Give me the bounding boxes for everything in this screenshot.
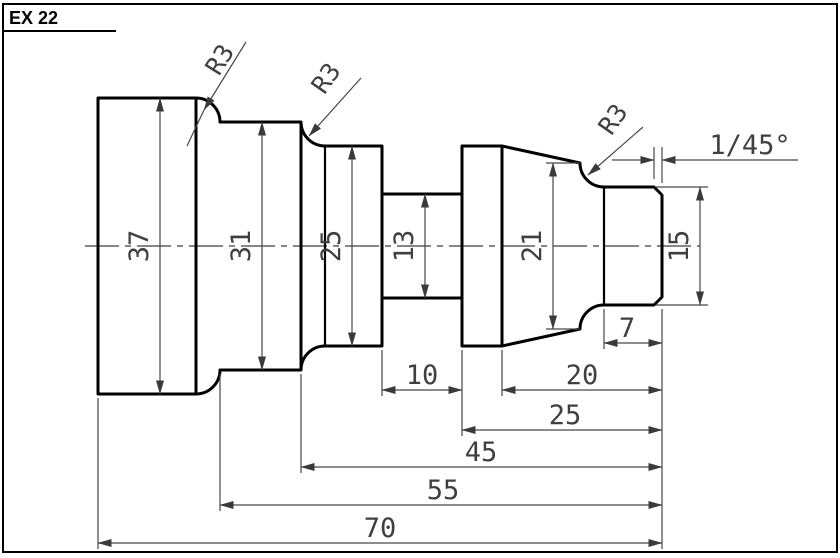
dim-text-7: 7 bbox=[619, 313, 635, 344]
dim-text-20: 20 bbox=[566, 360, 599, 391]
dim-text-25: 25 bbox=[549, 400, 582, 431]
radius-text-r3-3: R3 bbox=[593, 98, 634, 139]
dim-text-45: 45 bbox=[465, 437, 498, 468]
page-frame: EX 22 bbox=[3, 4, 837, 552]
extension-lines bbox=[98, 147, 708, 549]
cad-drawing: EX 22 bbox=[0, 0, 840, 558]
dimension-texts: 37 31 25 13 21 15 10 20 7 25 45 55 70 R3… bbox=[124, 39, 791, 544]
dim-text-d37: 37 bbox=[124, 230, 155, 263]
page-border bbox=[3, 4, 837, 552]
radius-leaders bbox=[187, 42, 643, 175]
chamfer-text: 1/45° bbox=[709, 130, 790, 161]
radius-text-r3-2: R3 bbox=[306, 57, 347, 98]
dim-text-55: 55 bbox=[427, 475, 460, 506]
page-title: EX 22 bbox=[9, 8, 58, 28]
radius-text-r3-1: R3 bbox=[200, 39, 241, 80]
dim-text-70: 70 bbox=[364, 513, 397, 544]
dimension-lines bbox=[98, 98, 700, 543]
dim-text-d25: 25 bbox=[316, 230, 347, 263]
dim-text-d15: 15 bbox=[664, 230, 695, 263]
dim-text-d13: 13 bbox=[389, 230, 420, 263]
drawing-page: EX 22 bbox=[0, 0, 840, 558]
dim-text-d31: 31 bbox=[226, 230, 257, 263]
dim-text-10: 10 bbox=[406, 360, 439, 391]
dim-text-d21: 21 bbox=[517, 230, 548, 263]
